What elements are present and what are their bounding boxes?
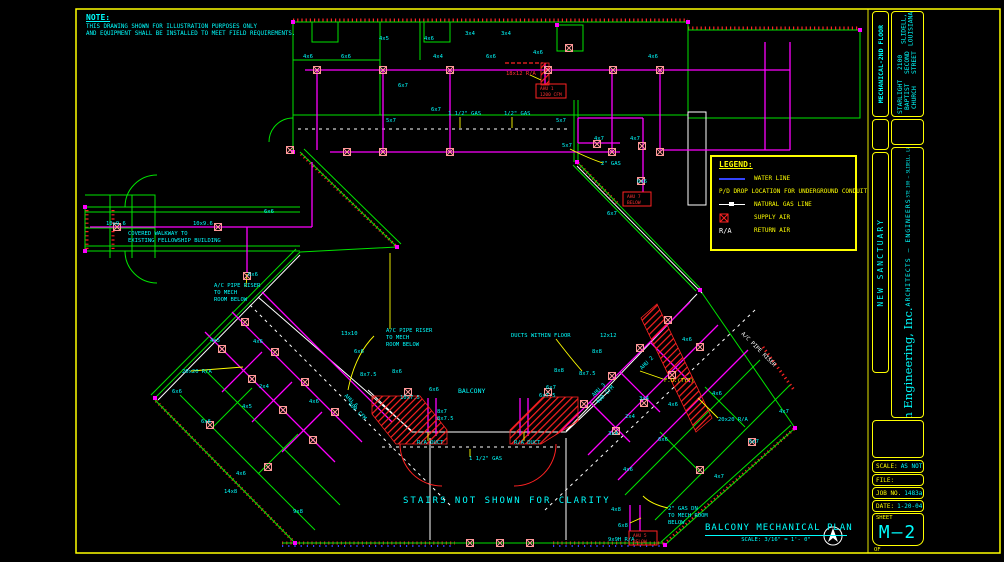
plan-label: 4x5	[379, 36, 389, 42]
legend-row-gas: NATURAL GAS LINE	[719, 198, 848, 211]
plan-label: 6x8	[618, 523, 628, 529]
plan-label: 10x7.5	[400, 395, 420, 401]
plan-label: 3x4	[465, 31, 476, 37]
titleblock-spacer	[872, 420, 924, 458]
plan-label: 2x4	[259, 384, 270, 390]
scale-label: SCALE:	[876, 463, 898, 470]
titleblock-date: DATE: 1-20-04	[872, 500, 924, 512]
plan-label: AHU 7	[627, 194, 641, 200]
plan-label: 4x7	[779, 409, 789, 415]
plan-label: 6x7	[431, 107, 441, 113]
titleblock-project-name: NEW SANCTUARY	[872, 152, 889, 373]
plan-label: 6x6	[264, 209, 274, 215]
water-line-icon	[719, 178, 749, 180]
legend-title: LEGEND:	[719, 160, 848, 169]
return-air-symbol: R/A	[719, 227, 749, 235]
plan-label: 3x4	[608, 431, 619, 437]
firm-address: STE 100 — SLIDELL, LA 70458	[905, 147, 910, 198]
plan-label: A/C PIPE RISER	[740, 331, 778, 369]
plan-label: BELOW	[633, 539, 647, 545]
supply-trunks	[372, 63, 712, 545]
plan-label: R/A DUCT	[417, 440, 444, 446]
plan-label: BALCONY	[458, 387, 485, 395]
file-label: FILE:	[876, 477, 894, 484]
plan-label: 20x20 R/A	[718, 417, 748, 423]
plan-label: 3x4	[639, 396, 650, 402]
plan-label: 6x6	[486, 54, 496, 60]
gas-line-icon	[719, 204, 749, 205]
plan-label: 4x5	[210, 338, 220, 344]
plan-label: 8x7	[437, 409, 447, 415]
supply-diffuser	[280, 407, 287, 414]
plan-label: 6x6	[354, 349, 364, 355]
plan-label: ROOM BELOW	[214, 297, 248, 303]
plan-label: 8x8	[592, 349, 602, 355]
labels-layer: 3x43x44x54x64x66x64x46x64x64x66x75x75x76…	[106, 31, 789, 545]
titleblock-spacer	[891, 119, 924, 145]
drawing-canvas: 3x43x44x54x64x66x64x46x64x64x66x75x75x76…	[0, 0, 1004, 562]
plan-label: F.U.(TYP)	[664, 378, 694, 384]
plan-label: 4x7	[714, 474, 724, 480]
legend-row-pd-drop: P/D DROP LOCATION FOR UNDERGROUND CONDUI…	[719, 185, 848, 198]
legend-label: WATER LINE	[754, 175, 790, 182]
note-line: AND EQUIPMENT SHALL BE INSTALLED TO MEET…	[86, 31, 301, 38]
plan-label: 1 1/2" GAS	[469, 456, 502, 462]
plan-label: 6x6	[172, 389, 182, 395]
plan-label: 8x7.5	[437, 416, 454, 422]
plan-label: EXISTING FELLOWSHIP BUILDING	[128, 238, 221, 244]
plan-label: 4x6	[648, 54, 658, 60]
titleblock-scale: SCALE: AS NOTED	[872, 460, 924, 473]
firm-name: Dammon Engineering, Inc.	[901, 308, 915, 418]
legend-row-water: WATER LINE	[719, 172, 848, 185]
plan-label: 4x6	[533, 50, 543, 56]
walls	[85, 22, 860, 545]
plan-label: COVERED WALKWAY TO	[128, 231, 188, 237]
plan-label: 4x7	[630, 136, 640, 142]
plan-label: 6x6	[429, 387, 439, 393]
plan-label: 4x6	[623, 467, 633, 473]
supply-air-icon	[719, 213, 749, 223]
plan-label: 18x12 R/A	[506, 71, 536, 77]
plan-label: 14x8	[224, 489, 237, 495]
supply-diffuser	[665, 317, 672, 324]
project-name-text: NEW SANCTUARY	[876, 218, 885, 307]
plan-label: 5x7	[562, 143, 572, 149]
plan-label: 8x7.5	[360, 372, 377, 378]
plan-label: AHU 1	[540, 86, 554, 92]
plan-label: 6x7.5	[539, 393, 556, 399]
plan-label: 6x7	[607, 211, 617, 217]
titleblock-firm: Dammon Engineering, Inc. ARCHITECTS — EN…	[891, 147, 924, 418]
plan-label: 4x6	[424, 36, 434, 42]
note-title: NOTE:	[86, 13, 301, 22]
plan-label: 3x4	[501, 31, 512, 37]
plan-label: TO MECH	[214, 290, 237, 296]
of-label: OF	[874, 547, 881, 553]
plan-scale: SCALE: 3/16" = 1'- 0"	[705, 537, 847, 543]
plan-label: 6x6	[637, 179, 647, 185]
plan-label: 4x7	[594, 136, 604, 142]
legend-row-return: R/A RETURN AIR	[719, 224, 848, 237]
plan-label: 4x6	[668, 402, 678, 408]
plan-label: 10x9.6	[193, 221, 213, 227]
note: NOTE: THIS DRAWING SHOWN FOR ILLUSTRATIO…	[86, 13, 301, 38]
firm-subtitle: ARCHITECTS — ENGINEERS	[904, 199, 912, 307]
plan-label: AHU 2	[639, 355, 655, 371]
plan-label: ROOM BELOW	[386, 342, 420, 348]
plan-label: 4x5	[242, 404, 252, 410]
plan-label: 4x6	[712, 391, 722, 397]
plan-label: 13x10	[341, 331, 358, 337]
supply-diffuser	[639, 143, 646, 150]
scale-value: AS NOTED	[901, 463, 924, 470]
plan-label: 8x8	[554, 368, 564, 374]
supply-diffuser	[310, 437, 317, 444]
titleblock-file: FILE:	[872, 474, 924, 486]
plan-label: 4x6	[303, 54, 313, 60]
plan-label: 4x6	[682, 337, 692, 343]
legend: LEGEND: WATER LINE P/D DROP LOCATION FOR…	[710, 155, 857, 251]
plan-label: 6x7	[749, 439, 759, 445]
plan-label: 12x12	[600, 333, 617, 339]
titleblock-spacer	[872, 119, 889, 150]
cad-sheet: 3x43x44x54x64x66x64x46x64x64x66x75x75x76…	[0, 0, 1004, 562]
plan-label: 4x4	[433, 54, 444, 60]
project-line: SLIDELL, LOUISIANA	[901, 12, 915, 46]
plan-label: DUCTS WITHIN FLOOR	[511, 333, 571, 339]
project-line: STARLIGHT BAPTIST CHURCH	[897, 78, 918, 116]
supply-diffuser	[581, 401, 588, 408]
titleblock-sheet-title: MECHANICAL-2ND FLOOR	[872, 11, 889, 117]
plan-label: A/C PIPE RISER	[386, 328, 433, 334]
date-value: 1-20-04	[897, 503, 922, 510]
plan-label: TO MECH ROOM	[668, 513, 708, 519]
plan-label: 10x9.6	[106, 221, 126, 227]
legend-label: SUPPLY AIR	[754, 214, 790, 221]
sheet-number: M—2	[873, 522, 923, 543]
plan-label: 5x7	[556, 118, 566, 124]
plan-label: 4x6	[309, 399, 319, 405]
titleblock-sheet-number: SHEET M—2	[872, 513, 924, 546]
job-label: JOB NO.	[876, 490, 901, 497]
plan-label: 2" GAS	[601, 161, 621, 167]
legend-label: P/D DROP LOCATION FOR UNDERGROUND CONDUI…	[719, 188, 867, 195]
legend-row-supply: SUPPLY AIR	[719, 211, 848, 224]
plan-label: 2" GAS DN	[668, 506, 698, 512]
plan-label: 6x7	[546, 385, 556, 391]
sheet-border	[76, 9, 1000, 553]
stairs-note: STAIRS NOT SHOWN FOR CLARITY	[403, 496, 611, 506]
legend-label: NATURAL GAS LINE	[754, 201, 812, 208]
plan-title-block: BALCONY MECHANICAL PLAN SCALE: 3/16" = 1…	[705, 523, 847, 543]
plan-title: BALCONY MECHANICAL PLAN	[705, 523, 847, 536]
supply-diffuser	[219, 346, 226, 353]
sheet-title-text: MECHANICAL-2ND FLOOR	[877, 25, 885, 103]
diffusers-layer	[114, 45, 756, 547]
plan-label: 8x7.5	[579, 371, 596, 377]
plan-label: 6x6	[658, 437, 668, 443]
sheet-label: SHEET	[876, 515, 893, 521]
plan-label: 9x9H R/A	[608, 537, 635, 543]
plan-label: A/C PIPE RISER	[214, 283, 261, 289]
plan-label: 4x6	[253, 339, 263, 345]
titleblock-job: JOB NO. 1483a	[872, 487, 924, 499]
supply-diffuser	[609, 373, 616, 380]
plan-label: 2x4	[625, 414, 636, 420]
plan-label: TO MECH	[386, 335, 409, 341]
supply-diffuser	[249, 376, 256, 383]
project-line: 2100 SECOND STREET	[897, 48, 918, 76]
plan-label: 1/2" GAS	[504, 111, 531, 117]
titleblock-project: STARLIGHT BAPTIST CHURCH 2100 SECOND STR…	[891, 11, 924, 117]
plan-label: 8x6	[392, 369, 402, 375]
plan-label: 6x6	[341, 54, 351, 60]
supply-diffuser	[637, 345, 644, 352]
plan-label: 6x6	[201, 419, 211, 425]
column-markers	[83, 20, 862, 547]
plan-label: 1200 CFM	[540, 92, 562, 98]
date-label: DATE:	[876, 503, 894, 510]
plan-label: AHU 5	[633, 533, 647, 539]
plan-label: 6x7	[398, 83, 408, 89]
job-value: 1483a	[904, 490, 922, 497]
supply-diffuser	[566, 45, 573, 52]
plan-label: 6x6	[248, 272, 258, 278]
plan-label: 9x8	[293, 509, 303, 515]
plan-label: 4x8	[611, 507, 621, 513]
plan-label: BELOW	[627, 200, 641, 206]
supply-diffuser	[697, 344, 704, 351]
plan-label: 5x7	[386, 118, 396, 124]
legend-label: RETURN AIR	[754, 227, 790, 234]
plan-label: 20x20 R/A	[182, 369, 212, 375]
note-line: THIS DRAWING SHOWN FOR ILLUSTRATION PURP…	[86, 24, 301, 31]
plan-label: BELOW	[668, 520, 685, 526]
plan-label: R/A DUCT	[514, 440, 541, 446]
plan-label: 4x6	[236, 471, 246, 477]
plan-label: 1 1/2" GAS	[448, 111, 481, 117]
